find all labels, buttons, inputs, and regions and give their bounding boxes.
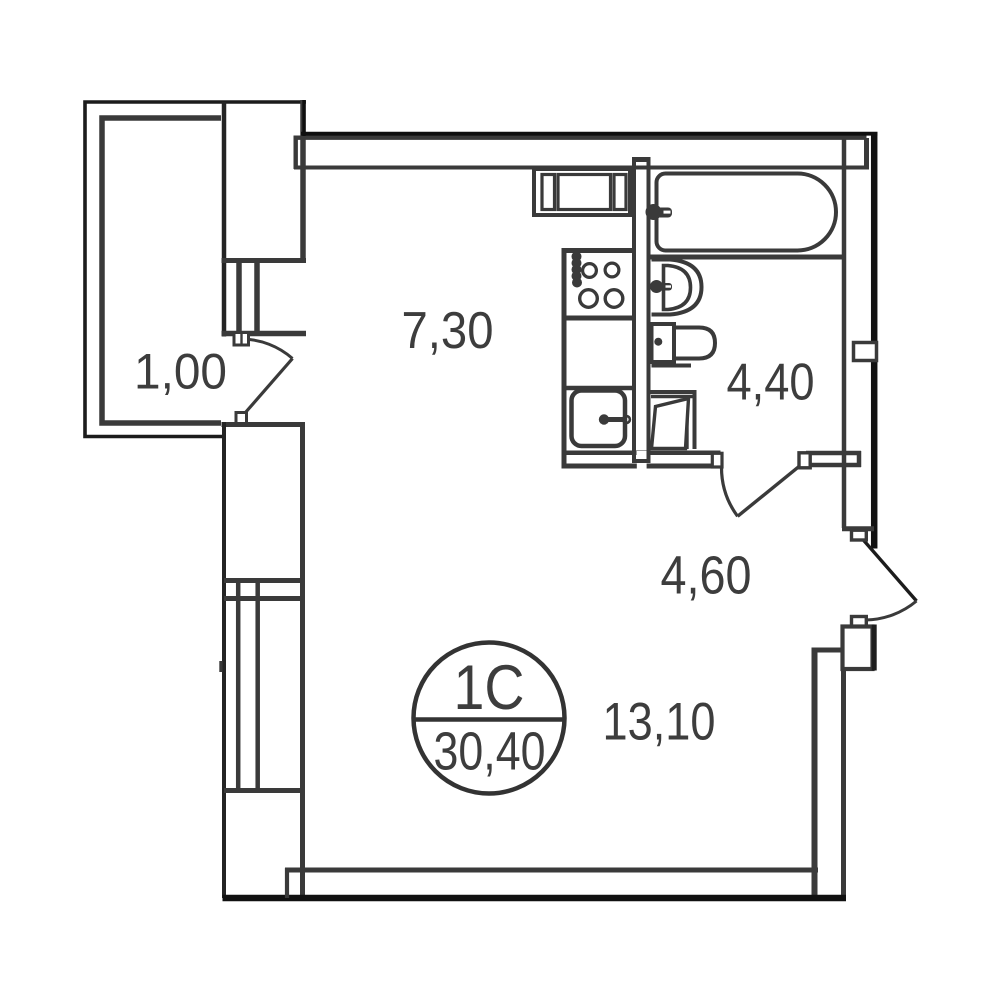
svg-text:7,30: 7,30 (402, 302, 494, 360)
svg-text:30,40: 30,40 (434, 723, 546, 782)
svg-text:1С: 1С (454, 653, 525, 723)
svg-text:13,10: 13,10 (603, 693, 716, 752)
svg-text:1,00: 1,00 (134, 342, 227, 399)
svg-text:4,60: 4,60 (661, 547, 752, 606)
svg-text:4,40: 4,40 (727, 354, 815, 412)
